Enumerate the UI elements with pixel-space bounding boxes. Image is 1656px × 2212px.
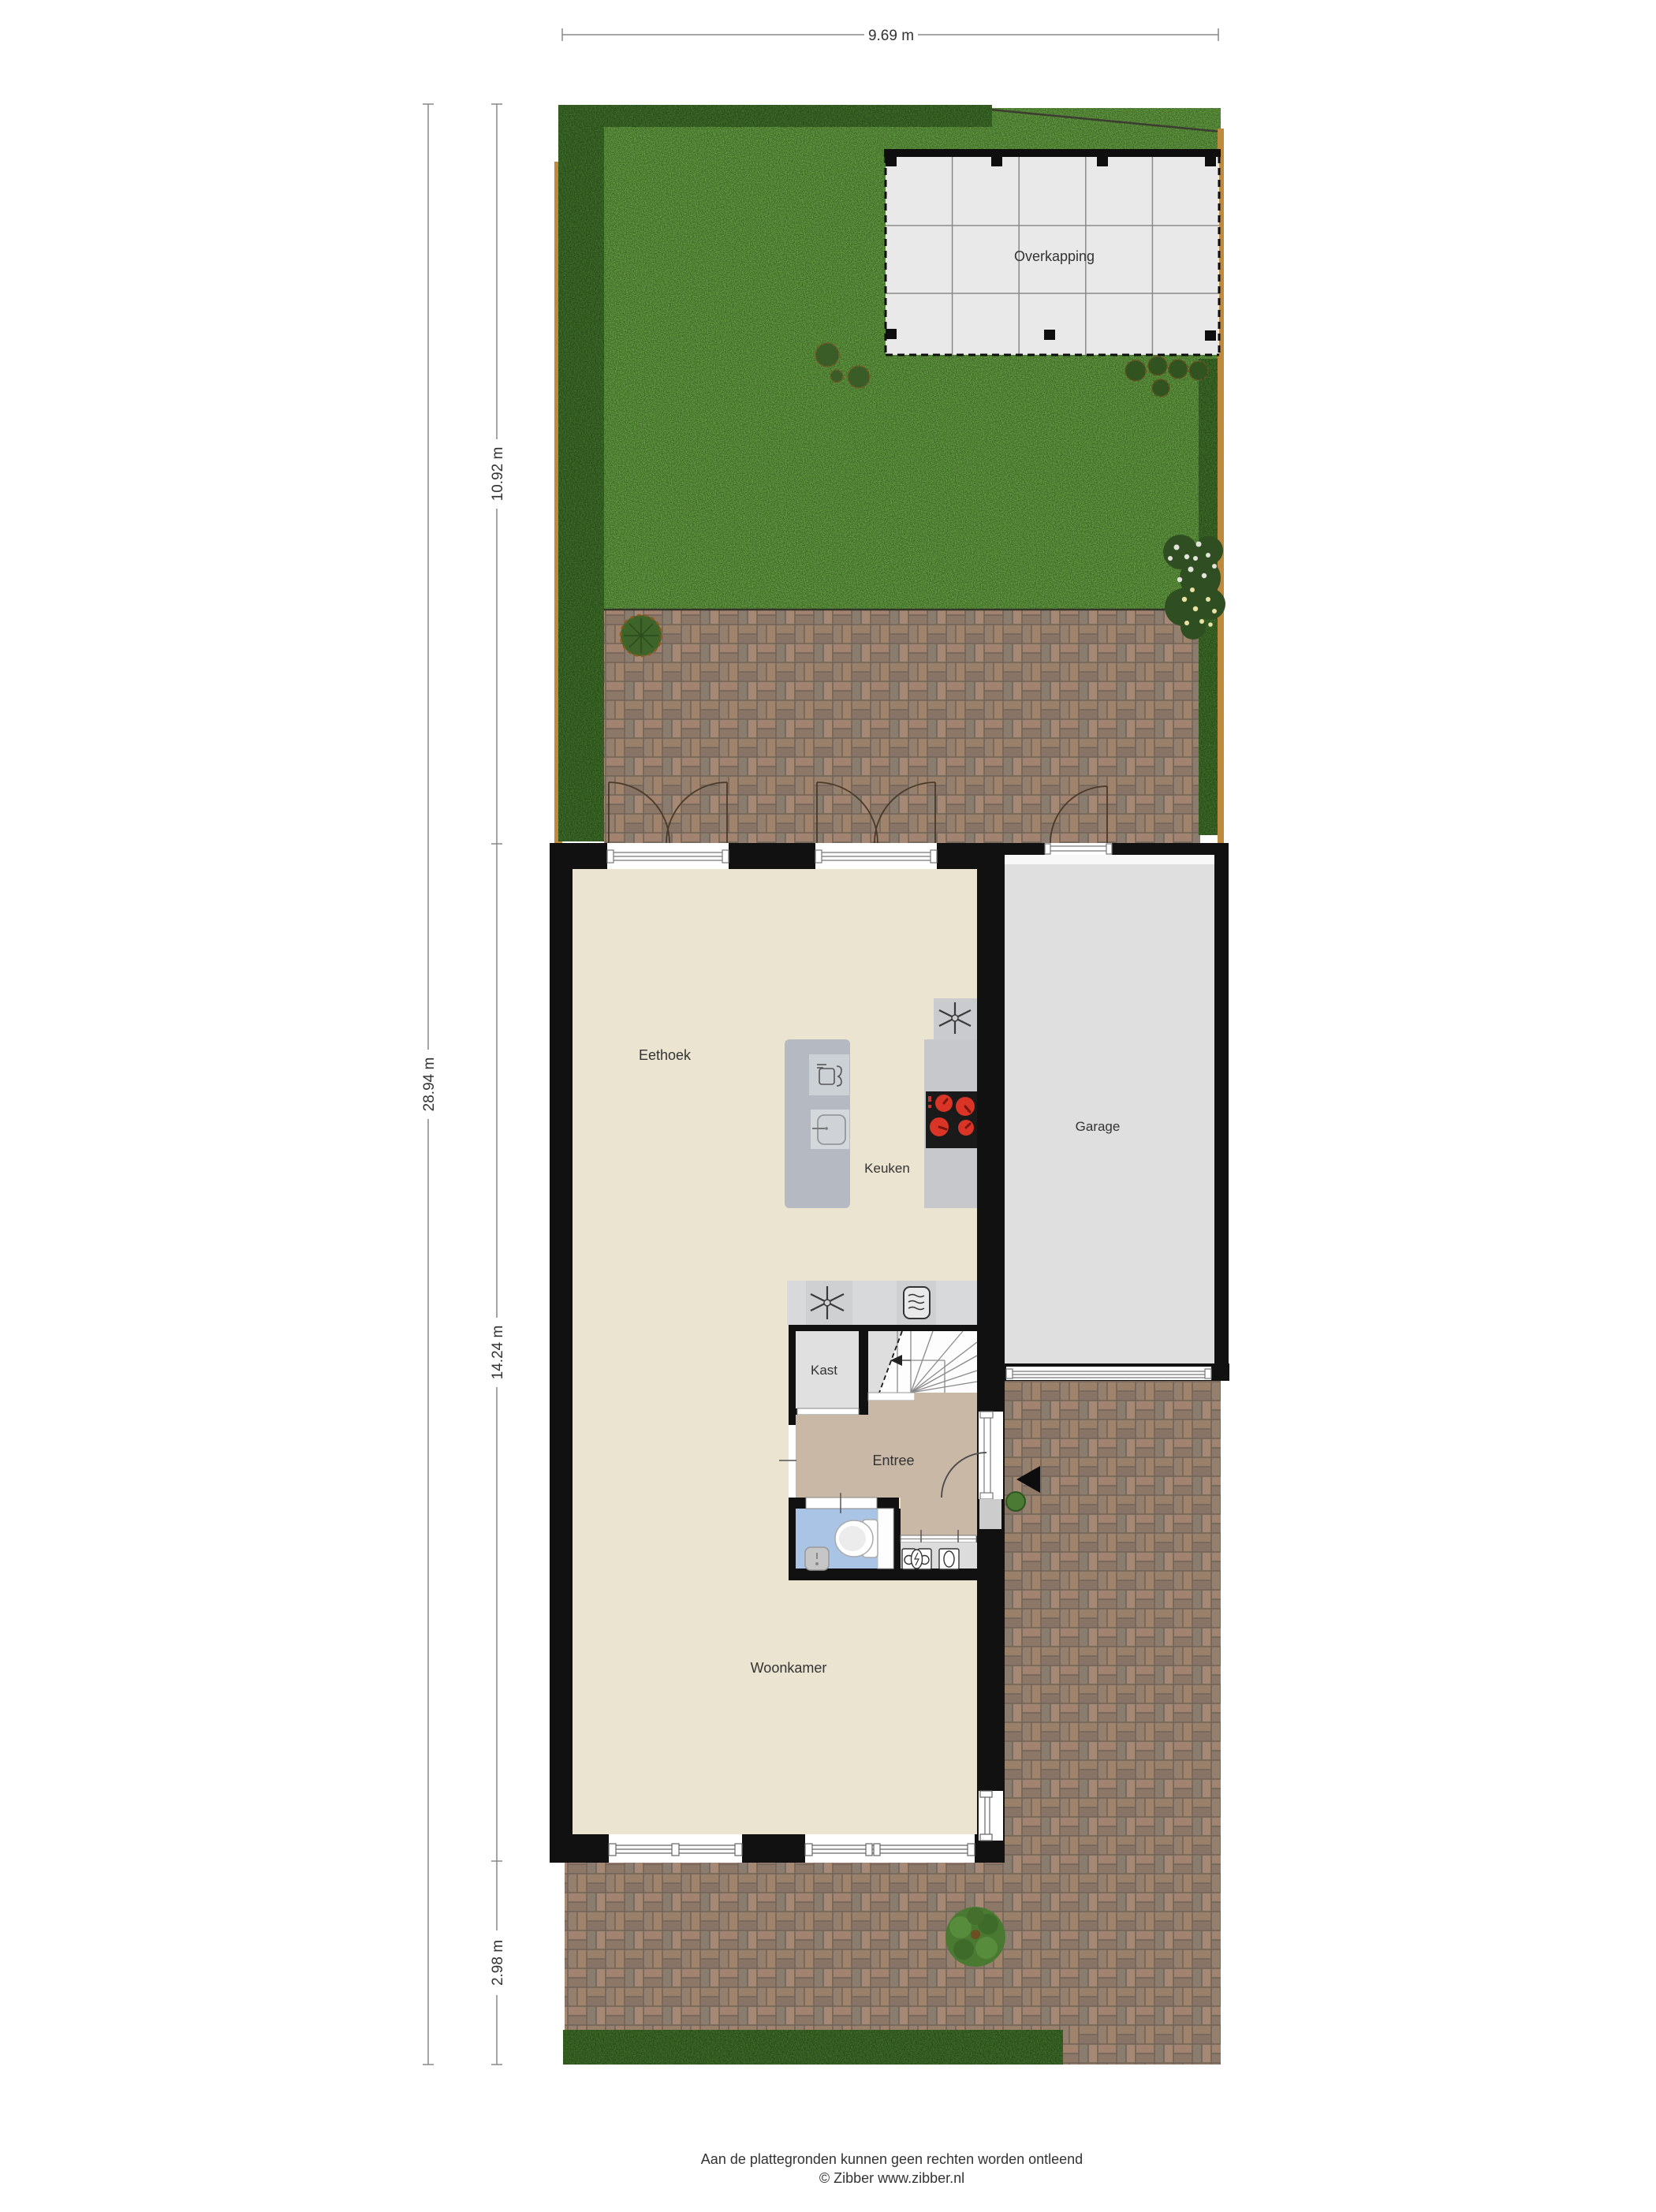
- svg-text:Woonkamer: Woonkamer: [751, 1660, 827, 1676]
- svg-text:9.69 m: 9.69 m: [868, 28, 914, 44]
- svg-text:Keuken: Keuken: [864, 1161, 910, 1176]
- svg-text:© Zibber www.zibber.nl: © Zibber www.zibber.nl: [819, 2170, 964, 2186]
- svg-text:28.94 m: 28.94 m: [421, 1058, 438, 1112]
- svg-text:Kast: Kast: [811, 1363, 837, 1378]
- svg-text:10.92 m: 10.92 m: [490, 447, 506, 502]
- svg-text:Entree: Entree: [872, 1453, 914, 1468]
- svg-text:Overkapping: Overkapping: [1014, 248, 1095, 264]
- svg-text:Aan de plattegronden kunnen ge: Aan de plattegronden kunnen geen rechten…: [701, 2151, 1083, 2167]
- svg-text:14.24 m: 14.24 m: [490, 1326, 506, 1380]
- svg-text:Garage: Garage: [1076, 1119, 1121, 1134]
- svg-text:Eethoek: Eethoek: [639, 1047, 692, 1063]
- svg-text:2.98 m: 2.98 m: [490, 1940, 506, 1986]
